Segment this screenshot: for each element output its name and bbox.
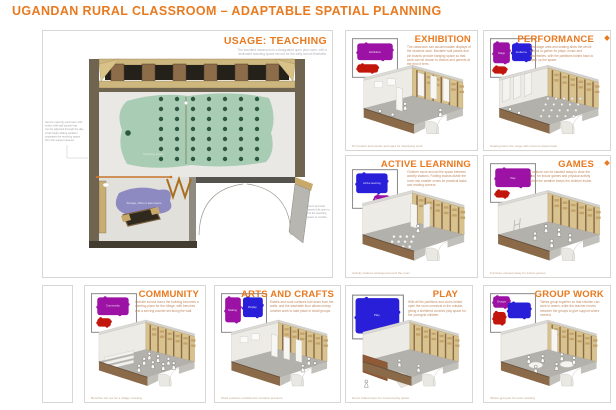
floor-plan: Teaching spaceStorage, office or quiet s… <box>43 57 334 257</box>
usage-teaching-description: The standard classroom is a designated o… <box>209 48 327 57</box>
svg-text:panels fold open to: panels fold open to <box>307 208 330 212</box>
community-caption: Benches set out for a village meeting <box>91 396 142 400</box>
svg-text:Display: Display <box>248 305 258 309</box>
page-title: UGANDAN RURAL CLASSROOM – ADAPTABLE SPAT… <box>12 4 442 18</box>
svg-text:Storage, office or quiet space: Storage, office or quiet space <box>127 201 162 205</box>
play-room-view <box>349 313 469 393</box>
active-learning-title: ACTIVE LEARNING <box>381 159 471 170</box>
usage-teaching-title: USAGE: TEACHING <box>224 35 327 47</box>
presentation-sheet: UGANDAN RURAL CLASSROOM – ADAPTABLE SPAT… <box>0 0 616 410</box>
title-marker-icon <box>604 160 610 166</box>
svg-text:link the teaching: link the teaching <box>307 211 327 215</box>
panel-usage-teaching: USAGE: TEACHING The standard classroom i… <box>42 30 333 278</box>
performance-caption: Seating faces the stage with screens dra… <box>490 144 557 148</box>
performance-room-view <box>487 58 607 141</box>
svg-text:Stage: Stage <box>498 51 506 55</box>
svg-text:Doors and wall: Doors and wall <box>307 204 325 208</box>
games-room-view <box>487 183 607 268</box>
svg-text:space to outside.: space to outside. <box>307 215 328 219</box>
svg-text:Teaching space: Teaching space <box>143 152 164 156</box>
svg-text:Exhibition: Exhibition <box>369 50 381 54</box>
svg-text:separates the teaching space: separates the teaching space <box>45 134 81 138</box>
svg-text:can be adjusted through the da: can be adjusted through the day. <box>45 127 84 131</box>
exhibition-room-view <box>349 58 474 141</box>
performance-title: PERFORMANCE <box>517 34 594 45</box>
exhibition-caption: Pin boards and panels arranged for displ… <box>352 144 423 148</box>
svg-text:A full height sliding partitio: A full height sliding partition <box>45 131 78 135</box>
svg-text:Secure masonry perimeter with: Secure masonry perimeter with <box>45 120 83 124</box>
svg-text:Making: Making <box>228 308 237 312</box>
panel-performance: StageAudience PERFORMANCE The stage area… <box>483 30 611 151</box>
group-work-title: GROUP WORK <box>535 289 604 300</box>
community-description: Outside school hours the building become… <box>135 300 199 313</box>
arts-and-crafts-title: ARTS AND CRAFTS <box>241 289 334 300</box>
svg-text:from the support spaces.: from the support spaces. <box>45 138 75 142</box>
panel-group-work: Groups GROUP WORK Tables group together … <box>483 285 611 403</box>
panel-community: Community COMMUNITY Outside school hours… <box>84 285 206 403</box>
play-caption: Doors folded open for covered play space <box>352 396 409 400</box>
svg-text:timber infill wall panels that: timber infill wall panels that <box>45 124 77 128</box>
svg-text:Groups: Groups <box>497 300 507 304</box>
community-title: COMMUNITY <box>139 289 199 300</box>
games-description: Furniture can be stacked away to clear t… <box>530 170 594 183</box>
group-work-caption: Tables grouped for team working <box>490 396 535 400</box>
games-caption: Furniture cleared away for indoor games <box>490 271 546 275</box>
empty-panel <box>42 285 73 403</box>
games-title: GAMES <box>558 159 594 170</box>
community-room-view <box>88 313 202 393</box>
arts-and-crafts-caption: Work surfaces unfolded for creative sess… <box>221 396 283 400</box>
panel-games: Play GAMES Furniture can be stacked away… <box>483 155 611 278</box>
panel-arts-and-crafts: MakingDisplay ARTS AND CRAFTS Easels and… <box>214 285 341 403</box>
panel-active-learning: Active learningResources ACTIVE LEARNING… <box>345 155 478 278</box>
panel-play: Play PLAY With all the partitions and do… <box>345 285 473 403</box>
arts-and-crafts-description: Easels and work surfaces fold down from … <box>270 300 334 313</box>
svg-text:Audience: Audience <box>516 50 528 54</box>
arts-and-crafts-room-view <box>218 313 337 393</box>
play-title: PLAY <box>433 289 458 300</box>
active-learning-caption: Activity stations arranged around the ro… <box>352 271 410 275</box>
group-work-room-view <box>487 313 607 393</box>
active-learning-room-view <box>349 183 474 268</box>
panel-exhibition: Exhibition EXHIBITION The classroom can … <box>345 30 478 151</box>
svg-text:Community: Community <box>106 304 120 308</box>
svg-text:Play: Play <box>510 176 516 180</box>
title-marker-icon <box>604 35 610 41</box>
exhibition-title: EXHIBITION <box>415 34 471 45</box>
